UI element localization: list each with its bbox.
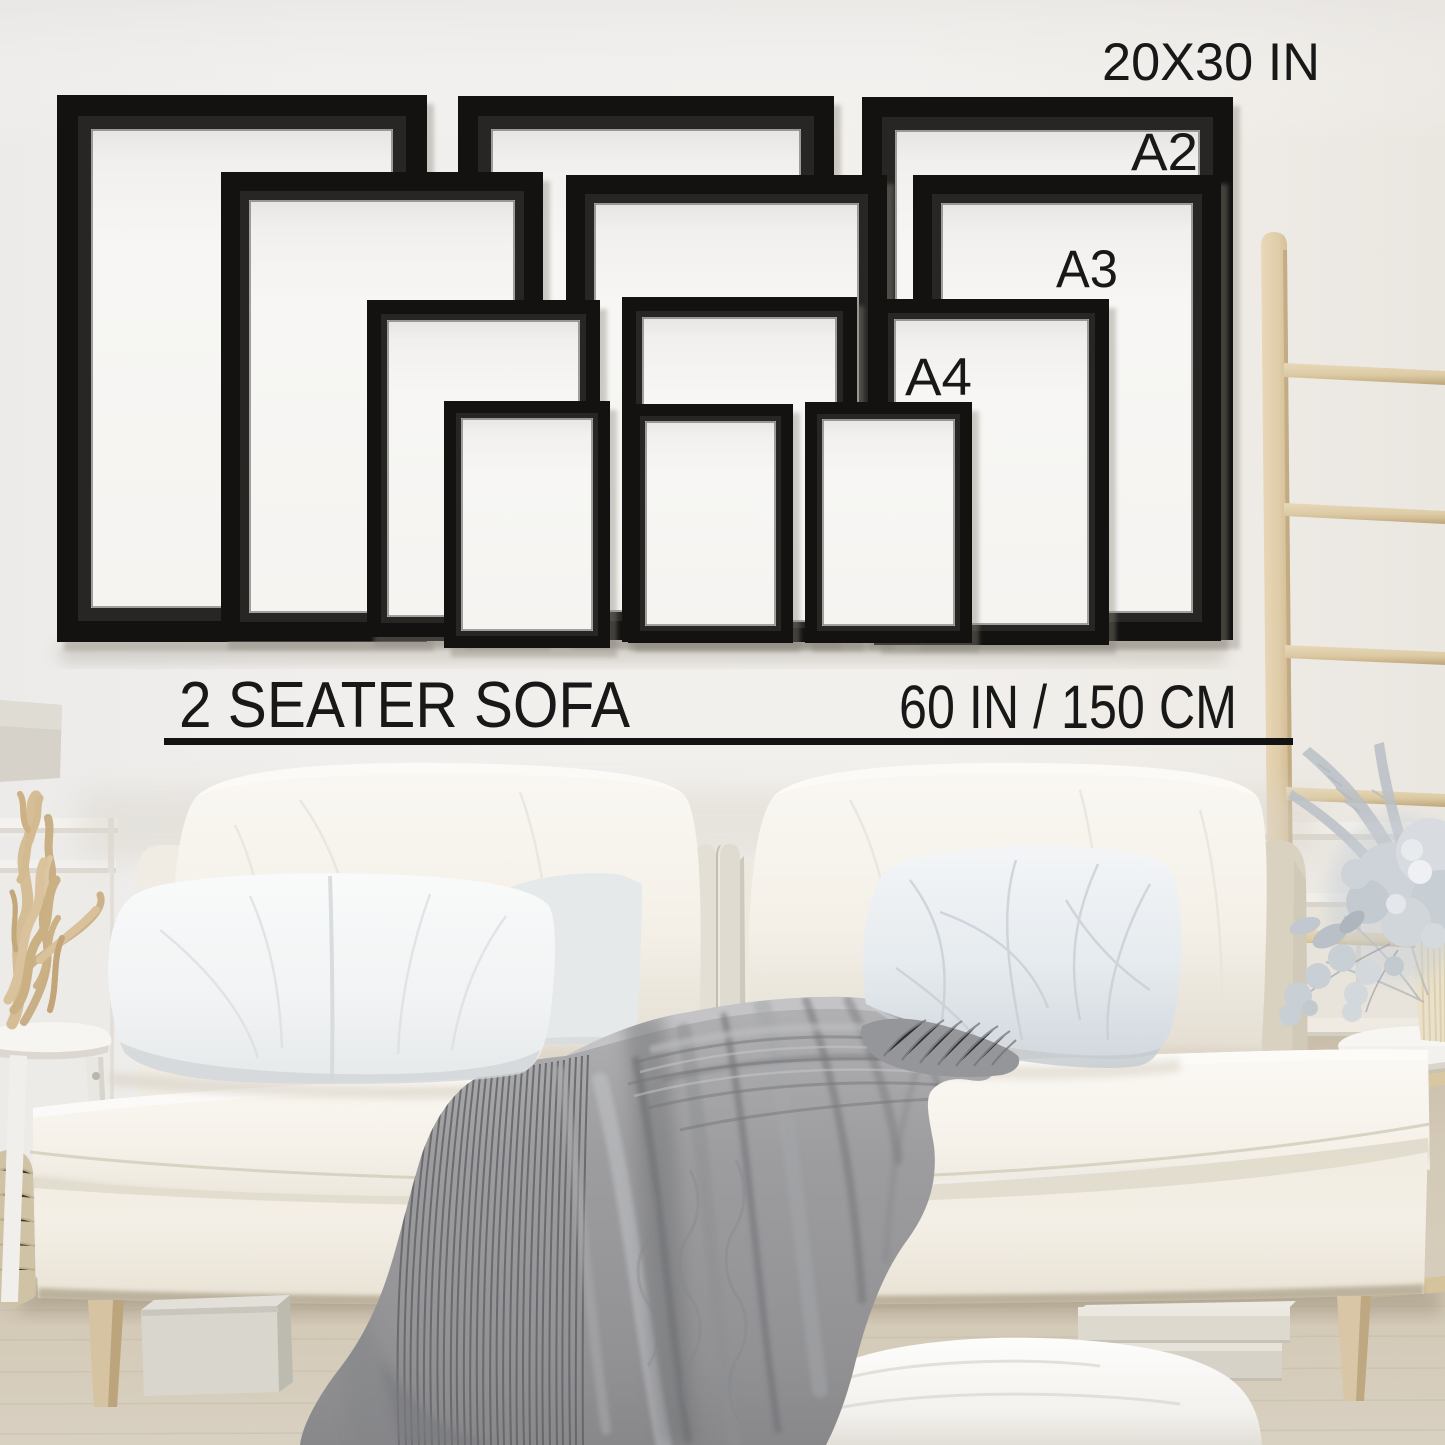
svg-text:20X30 IN: 20X30 IN xyxy=(1102,33,1320,92)
svg-text:A2: A2 xyxy=(1131,123,1198,182)
svg-text:A4: A4 xyxy=(905,348,972,407)
svg-text:A3: A3 xyxy=(1056,240,1118,299)
svg-text:60 IN / 150 CM: 60 IN / 150 CM xyxy=(899,673,1237,741)
svg-text:2 SEATER SOFA: 2 SEATER SOFA xyxy=(179,668,631,741)
